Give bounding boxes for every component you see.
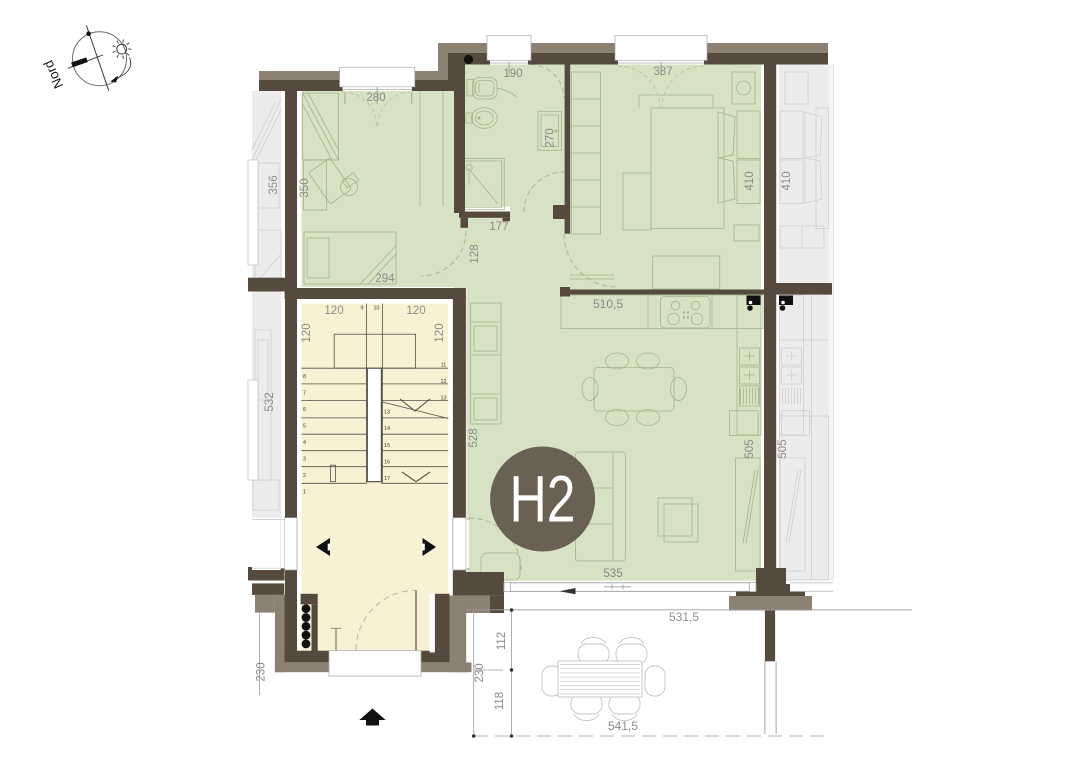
- svg-text:17: 17: [384, 476, 390, 482]
- svg-text:13: 13: [440, 396, 446, 402]
- svg-text:5: 5: [303, 424, 306, 430]
- svg-text:128: 128: [469, 244, 481, 263]
- svg-text:177: 177: [489, 221, 508, 233]
- svg-text:6: 6: [303, 407, 306, 413]
- svg-text:541,5: 541,5: [608, 719, 638, 733]
- svg-text:387: 387: [653, 66, 672, 78]
- svg-text:118: 118: [494, 692, 506, 710]
- svg-text:120: 120: [301, 323, 313, 342]
- svg-text:528: 528: [468, 428, 480, 447]
- svg-text:120: 120: [324, 305, 343, 317]
- svg-text:9: 9: [360, 306, 363, 312]
- svg-text:230: 230: [474, 663, 486, 682]
- svg-text:532: 532: [264, 392, 276, 411]
- svg-text:15: 15: [384, 443, 390, 449]
- svg-text:3: 3: [303, 457, 306, 463]
- svg-text:350: 350: [299, 178, 311, 197]
- svg-text:13: 13: [384, 410, 390, 416]
- svg-text:535: 535: [603, 568, 622, 580]
- svg-text:410: 410: [744, 171, 756, 190]
- svg-text:510,5: 510,5: [593, 297, 623, 311]
- svg-text:120: 120: [406, 305, 425, 317]
- svg-text:505: 505: [744, 439, 756, 458]
- svg-text:16: 16: [384, 460, 390, 466]
- svg-text:112: 112: [496, 632, 508, 650]
- svg-text:4: 4: [303, 440, 306, 446]
- svg-text:10: 10: [373, 306, 379, 312]
- svg-text:294: 294: [375, 273, 395, 285]
- svg-text:14: 14: [384, 426, 390, 432]
- svg-text:190: 190: [503, 68, 522, 80]
- svg-text:230: 230: [256, 662, 268, 681]
- svg-text:270: 270: [545, 128, 557, 147]
- svg-text:8: 8: [303, 374, 306, 380]
- svg-text:531,5: 531,5: [669, 610, 699, 624]
- svg-text:11: 11: [441, 363, 447, 369]
- svg-text:7: 7: [303, 391, 306, 397]
- svg-text:2: 2: [303, 473, 306, 479]
- svg-text:120: 120: [434, 323, 446, 342]
- svg-text:12: 12: [440, 379, 446, 385]
- svg-text:505: 505: [777, 439, 789, 458]
- svg-text:280: 280: [366, 92, 385, 104]
- svg-text:356: 356: [268, 175, 280, 194]
- svg-text:H2: H2: [510, 462, 576, 536]
- svg-text:1: 1: [303, 490, 306, 496]
- svg-text:410: 410: [781, 171, 793, 190]
